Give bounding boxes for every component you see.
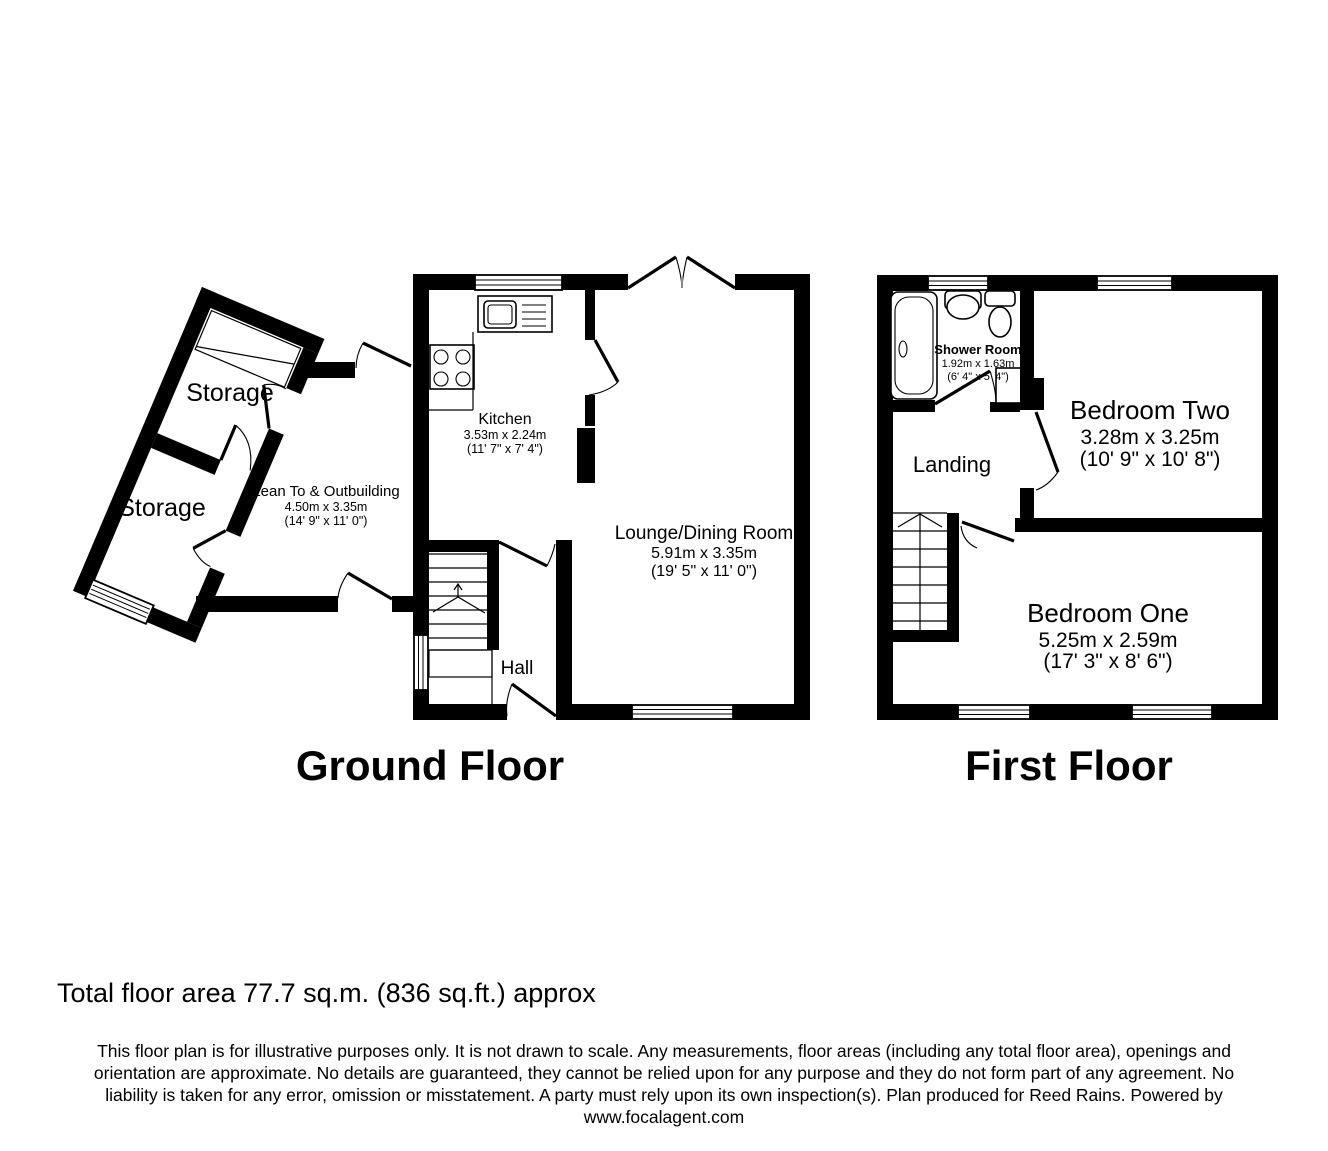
leanto-top-door: [356, 343, 411, 368]
storage-west-wall: [73, 287, 217, 597]
gf-bottom-wall-c: [733, 704, 810, 720]
first-floor-plan: Shower Room 1.92m x 1.63m (6' 4" x 5' 4"…: [877, 275, 1278, 789]
ff-bottom-wall-b: [1030, 704, 1132, 720]
gf-left-wall-b: [413, 690, 429, 720]
lounge-dims-m: 5.91m x 3.35m: [651, 545, 757, 562]
hall-inner-door: [499, 542, 555, 566]
storage-window: [85, 580, 154, 624]
storage-wing: [72, 287, 324, 645]
leanto-bottom-wall-a: [196, 596, 338, 612]
leanto-bottom-door: [338, 573, 392, 599]
gf-right-wall: [794, 274, 810, 720]
bath-icon: [891, 292, 937, 399]
toilet-icon: [985, 291, 1015, 337]
kitchen-wall-stub: [585, 395, 595, 426]
front-door: [507, 684, 556, 716]
kitchen-label: Kitchen: [478, 411, 531, 428]
ff-right-wall: [1262, 275, 1278, 720]
shower-window: [928, 276, 988, 290]
kitchen-window: [475, 275, 562, 290]
shower-room-dims-m: 1.92m x 1.63m: [942, 358, 1015, 370]
ff-bottom-wall-c: [1212, 704, 1278, 720]
disclaimer-line-1: This floor plan is for illustrative purp…: [0, 1040, 1328, 1062]
kitchen-door: [589, 340, 618, 395]
bedroom-one-door: [961, 522, 1014, 548]
shower-room-label: Shower Room: [934, 342, 1021, 357]
bedroom-one-label: Bedroom One: [1027, 598, 1189, 628]
leanto-label: Lean To & Outbuilding: [252, 483, 399, 500]
kitchen-dims-ft: (11' 7" x 7' 4"): [467, 442, 543, 456]
kitchen-sink-unit: [478, 296, 552, 332]
basin-icon: [945, 291, 981, 319]
kitchen-dims-m: 3.53m x 2.24m: [464, 428, 547, 442]
stairs-ground: [429, 540, 499, 704]
storage-north-wall: [196, 287, 325, 354]
hall-lounge-wall: [556, 540, 572, 704]
leanto-bottom-wall-b: [392, 596, 413, 612]
first-floor-title: First Floor: [965, 742, 1173, 789]
leanto-dims-ft: (14' 9" x 11' 0"): [285, 514, 368, 528]
storage-divider-wall: [151, 433, 221, 475]
storage-two-door: [189, 522, 225, 567]
hall-label: Hall: [501, 658, 534, 679]
lounge-dims-ft: (19' 5" x 11' 0"): [651, 563, 757, 580]
shower-bottom-wall: [893, 400, 935, 412]
hob-icon: [430, 345, 474, 389]
storage-two-label: Storage: [118, 494, 206, 522]
understair-cupboard: [429, 650, 492, 677]
kitchen-lounge-wall: [585, 290, 595, 340]
ground-floor-title: Ground Floor: [296, 742, 564, 789]
bedroom-two-wall-block: [1020, 378, 1044, 410]
disclaimer-line-2: orientation are approximate. No details …: [0, 1062, 1328, 1084]
gf-top-wall-b: [562, 274, 628, 290]
stairs-first: [893, 513, 959, 642]
gf-left-wall-a: [413, 274, 429, 635]
bedroom-one-dims-m: 5.25m x 2.59m: [1039, 629, 1178, 652]
landing-label: Landing: [913, 452, 991, 477]
chimney-breast: [577, 428, 595, 483]
floorplan-page: { "ground_floor": { "title": "Ground Flo…: [0, 0, 1328, 1151]
shower-room-dims-ft: (6' 4" x 5' 4"): [947, 371, 1009, 383]
leanto-top-wall: [305, 362, 355, 378]
ff-top-wall-b: [988, 275, 1097, 291]
french-doors: [628, 257, 735, 288]
bedroom-two-door: [1036, 412, 1058, 490]
bedroom-one-window-left: [958, 705, 1030, 719]
hall-top-wall: [429, 540, 497, 552]
bedroom-two-dims-ft: (10' 9" x 10' 8"): [1080, 448, 1221, 471]
storage-one-label: Storage: [186, 379, 274, 407]
ground-floor-plan: Storage Storage Lean To & Outbuilding 4.…: [72, 257, 810, 789]
disclaimer-line-4: www.focalagent.com: [0, 1106, 1328, 1128]
lounge-label: Lounge/Dining Room: [615, 523, 794, 544]
total-floor-area: Total floor area 77.7 sq.m. (836 sq.ft.)…: [57, 978, 596, 1009]
gf-bottom-wall-b: [556, 704, 632, 720]
bedroom-two-wall-a: [1020, 275, 1034, 378]
bedroom-two-window: [1097, 276, 1172, 290]
stairs-up-arrow-icon: [433, 584, 485, 613]
disclaimer: This floor plan is for illustrative purp…: [0, 1040, 1328, 1128]
bedroom-divider-wall: [1015, 518, 1262, 532]
lounge-window: [632, 705, 733, 719]
bedroom-two-label: Bedroom Two: [1070, 395, 1230, 425]
bedroom-one-dims-ft: (17' 3" x 8' 6"): [1043, 650, 1172, 673]
bedroom-one-window-right: [1132, 705, 1212, 719]
leanto-dims-m: 4.50m x 3.35m: [285, 500, 368, 514]
disclaimer-line-3: liability is taken for any error, omissi…: [0, 1084, 1328, 1106]
bedroom-two-dims-m: 3.28m x 3.25m: [1081, 426, 1220, 449]
hall-window: [414, 635, 428, 690]
